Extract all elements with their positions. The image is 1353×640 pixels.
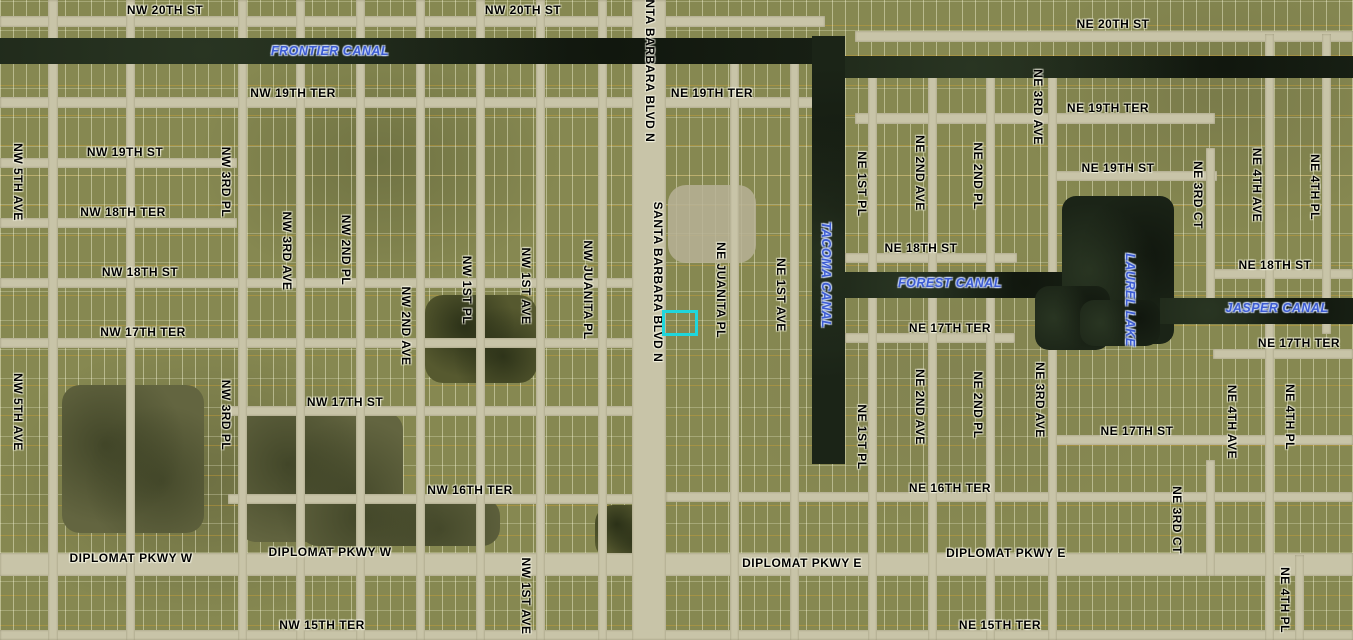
road-ne-16th-ter [666, 492, 1353, 502]
street-label: NW 18TH ST [102, 265, 178, 279]
road-nw-3rd-pl-rd [238, 0, 247, 640]
street-label: DIPLOMAT PKWY E [742, 556, 862, 570]
street-label: NE 18TH ST [884, 241, 957, 255]
water-label: JASPER CANAL [1225, 301, 1328, 315]
street-label: NE 4TH PL [1278, 567, 1292, 633]
frontier-canal [0, 38, 812, 64]
street-label: NW 5TH AVE [11, 373, 25, 451]
street-label: DIPLOMAT PKWY W [268, 545, 391, 559]
street-label: NW 2ND PL [339, 215, 353, 286]
street-label: NW 18TH TER [80, 205, 166, 219]
road-nw-1st-ave-rd [536, 0, 545, 640]
street-label: NW 1ST AVE [519, 247, 533, 324]
road-ne-4th-pl-rd-n [1322, 34, 1331, 334]
street-label: NW 3RD PL [219, 147, 233, 218]
ne-canal-top [845, 56, 1353, 78]
street-label: NE 4TH PL [1308, 154, 1322, 220]
road-ne-1st-ave-rd [790, 60, 799, 640]
aerial-parcel-map[interactable]: NW 20TH STNW 20TH STNE 20TH STFRONTIER C… [0, 0, 1353, 640]
street-label: NE 16TH TER [909, 481, 991, 495]
street-label: NE 3RD CT [1170, 486, 1184, 554]
street-label: NE 2ND AVE [913, 135, 927, 211]
street-label: NW 17TH ST [307, 395, 383, 409]
street-label: NE 19TH ST [1081, 161, 1154, 175]
road-nw-2nd-pl-rd [356, 0, 365, 640]
road-nw-17th-ter [0, 338, 666, 348]
water-label: TACOMA CANAL [819, 222, 833, 329]
cleared-lot [668, 185, 756, 263]
street-label: NE 4TH AVE [1225, 385, 1239, 459]
road-nw-19th-st [0, 158, 237, 168]
laurel-lake-south [1080, 300, 1160, 346]
street-label: NW 5TH AVE [11, 143, 25, 221]
street-label: NW 19TH TER [250, 86, 336, 100]
street-label: NW 17TH TER [100, 325, 186, 339]
road-ne-20th-st [855, 31, 1353, 42]
street-label: NW 19TH ST [87, 145, 163, 159]
water-label: FOREST CANAL [898, 276, 1002, 290]
street-label: NW 1ST AVE [519, 557, 533, 634]
street-label: NE 4TH PL [1283, 384, 1297, 450]
street-label: NE 17TH TER [1258, 336, 1340, 350]
street-label: NE 1ST PL [855, 404, 869, 469]
street-label: SANTA BARBARA BLVD N [643, 0, 657, 142]
street-label: NE 19TH TER [671, 86, 753, 100]
highlighted-parcel-marker[interactable] [662, 310, 698, 336]
street-label: NW 15TH TER [279, 618, 365, 632]
water-label: LAUREL LAKE [1123, 253, 1137, 346]
street-label: NE 17TH ST [1100, 424, 1173, 438]
street-label: NE 20TH ST [1076, 17, 1149, 31]
street-label: NE 1ST PL [855, 151, 869, 216]
street-label: NE 18TH ST [1238, 258, 1311, 272]
street-label: NW 16TH TER [427, 483, 513, 497]
vacant-field-16th [300, 498, 500, 546]
street-label: NW 3RD AVE [280, 211, 294, 290]
road-ne-1st-pl-rd [868, 64, 877, 640]
road-nw-18th-st [0, 278, 666, 288]
road-ne-17th-ter-e [1213, 349, 1353, 359]
road-nw-4th-rd [126, 0, 135, 640]
street-label: NE 3RD AVE [1031, 69, 1045, 145]
road-ne-2nd-ave-rd [928, 60, 937, 640]
street-label: NW 1ST PL [460, 256, 474, 325]
road-15th-ter [0, 630, 1353, 640]
street-label: NW 20TH ST [485, 3, 561, 17]
road-nw-18th-ter [0, 218, 237, 228]
road-ne-17th-st [1048, 435, 1353, 445]
street-label: NE 19TH TER [1067, 101, 1149, 115]
street-label: NE 2ND PL [971, 371, 985, 438]
road-ne-4th-pl-rd-s [1295, 555, 1304, 640]
street-label: NE 2ND PL [971, 142, 985, 209]
road-nw-5th-ave-rd [48, 0, 58, 640]
road-nw-2nd-ave-rd [416, 0, 425, 640]
street-label: NW 3RD PL [219, 380, 233, 451]
street-label: NE 17TH TER [909, 321, 991, 335]
water-label: FRONTIER CANAL [271, 44, 389, 58]
street-label: NW 20TH ST [127, 3, 203, 17]
road-diplomat-pkwy [0, 553, 1353, 576]
street-label: NE 15TH TER [959, 618, 1041, 632]
street-label: NE 2ND AVE [913, 369, 927, 445]
street-label: NE 3RD AVE [1033, 362, 1047, 438]
street-label: NE JUANITA PL [714, 242, 728, 338]
street-label: SANTA BARBARA BLVD N [651, 202, 665, 363]
street-label: NW JUANITA PL [581, 240, 595, 339]
road-nw-1st-pl-rd [476, 0, 485, 640]
road-nw-juanita-pl-rd [598, 0, 607, 640]
road-ne-3rd-ct-rd-s [1206, 460, 1215, 576]
road-ne-juanita-pl-rd [730, 60, 739, 640]
street-label: DIPLOMAT PKWY W [69, 551, 192, 565]
street-label: DIPLOMAT PKWY E [946, 546, 1066, 560]
road-ne-3rd-ct-rd-n [1206, 148, 1215, 310]
street-label: NW 2ND AVE [399, 286, 413, 365]
road-nw-20th-st [0, 16, 825, 27]
street-label: NE 4TH AVE [1250, 148, 1264, 222]
street-label: NE 3RD CT [1191, 161, 1205, 229]
street-label: NE 1ST AVE [774, 258, 788, 332]
